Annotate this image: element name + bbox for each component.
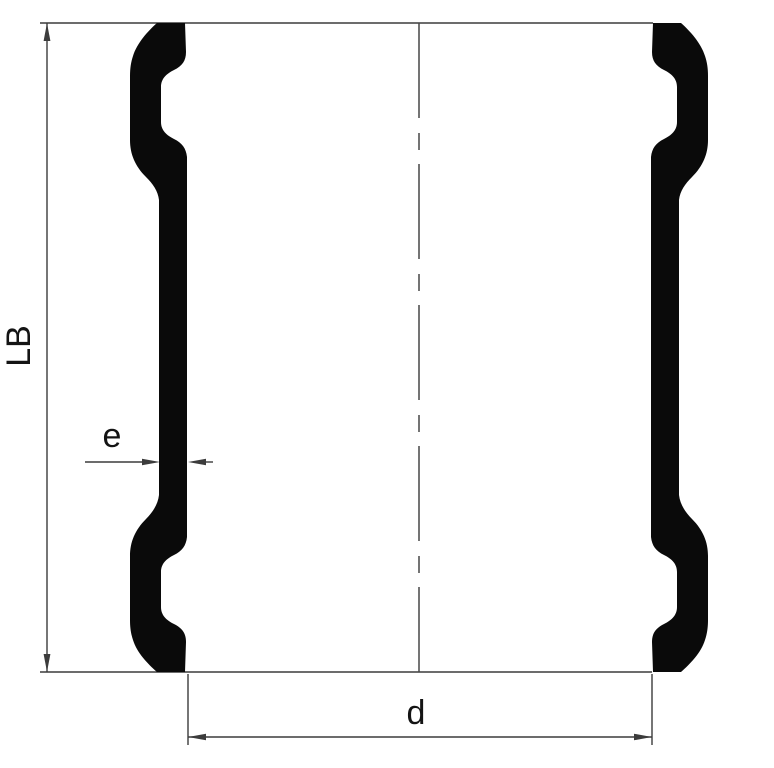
technical-drawing: LB e d: [0, 0, 774, 768]
drawing-canvas: LB e d: [0, 0, 774, 768]
lb-arrow-up-icon: [44, 23, 51, 41]
lb-dimension: LB: [0, 23, 50, 672]
lb-arrow-down-icon: [44, 654, 51, 672]
d-arrow-left-icon: [188, 734, 206, 741]
e-dimension: e: [85, 417, 213, 465]
e-label: e: [103, 417, 122, 455]
d-arrow-right-icon: [634, 734, 652, 741]
pipe-wall-left: [130, 23, 187, 672]
d-dimension: d: [188, 674, 652, 745]
e-arrow-left-icon: [188, 459, 206, 466]
e-arrow-right-icon: [142, 459, 160, 466]
lb-label: LB: [0, 325, 38, 367]
pipe-wall-right-mirror: [651, 23, 708, 672]
pipe-wall-right: [651, 23, 708, 672]
d-label: d: [407, 694, 426, 732]
